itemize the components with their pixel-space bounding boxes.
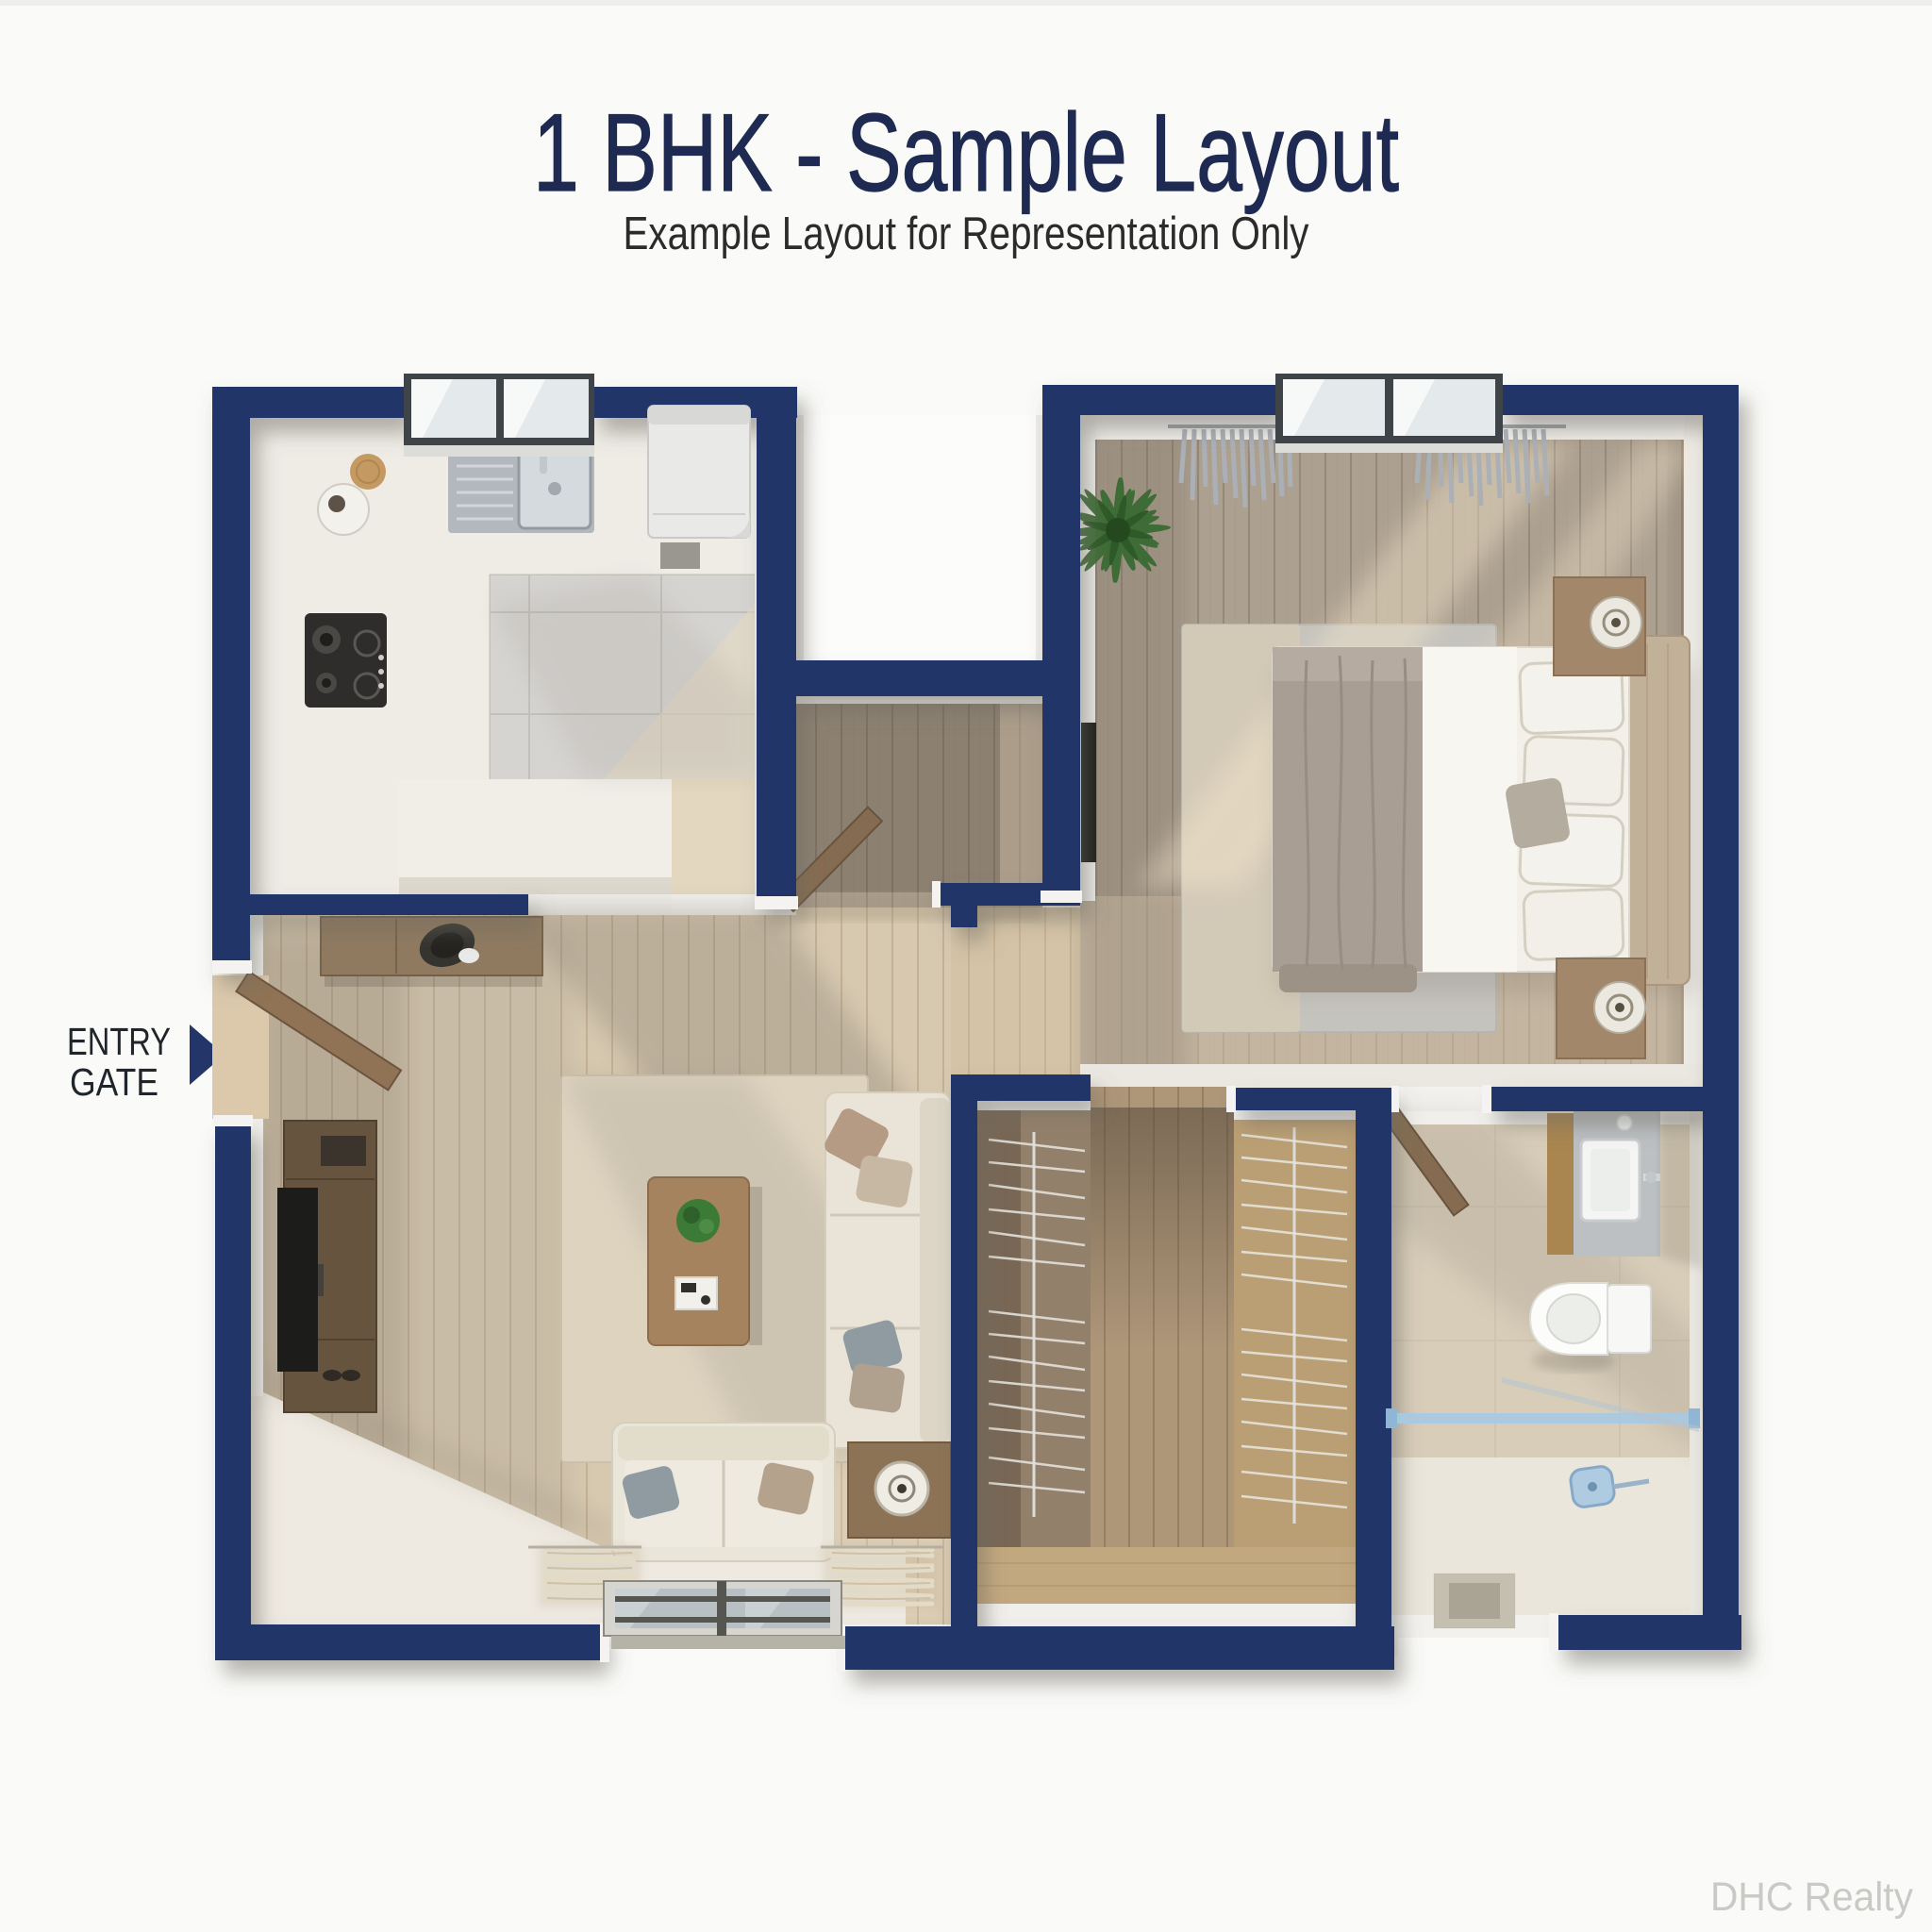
svg-text:GATE: GATE — [70, 1060, 158, 1104]
svg-text:1 BHK - Sample Layout: 1 BHK - Sample Layout — [533, 91, 1399, 214]
svg-text:ENTRY: ENTRY — [67, 1020, 171, 1063]
svg-text:Example Layout for Representat: Example Layout for Representation Only — [624, 208, 1309, 259]
svg-text:DHC Realty: DHC Realty — [1710, 1874, 1913, 1920]
